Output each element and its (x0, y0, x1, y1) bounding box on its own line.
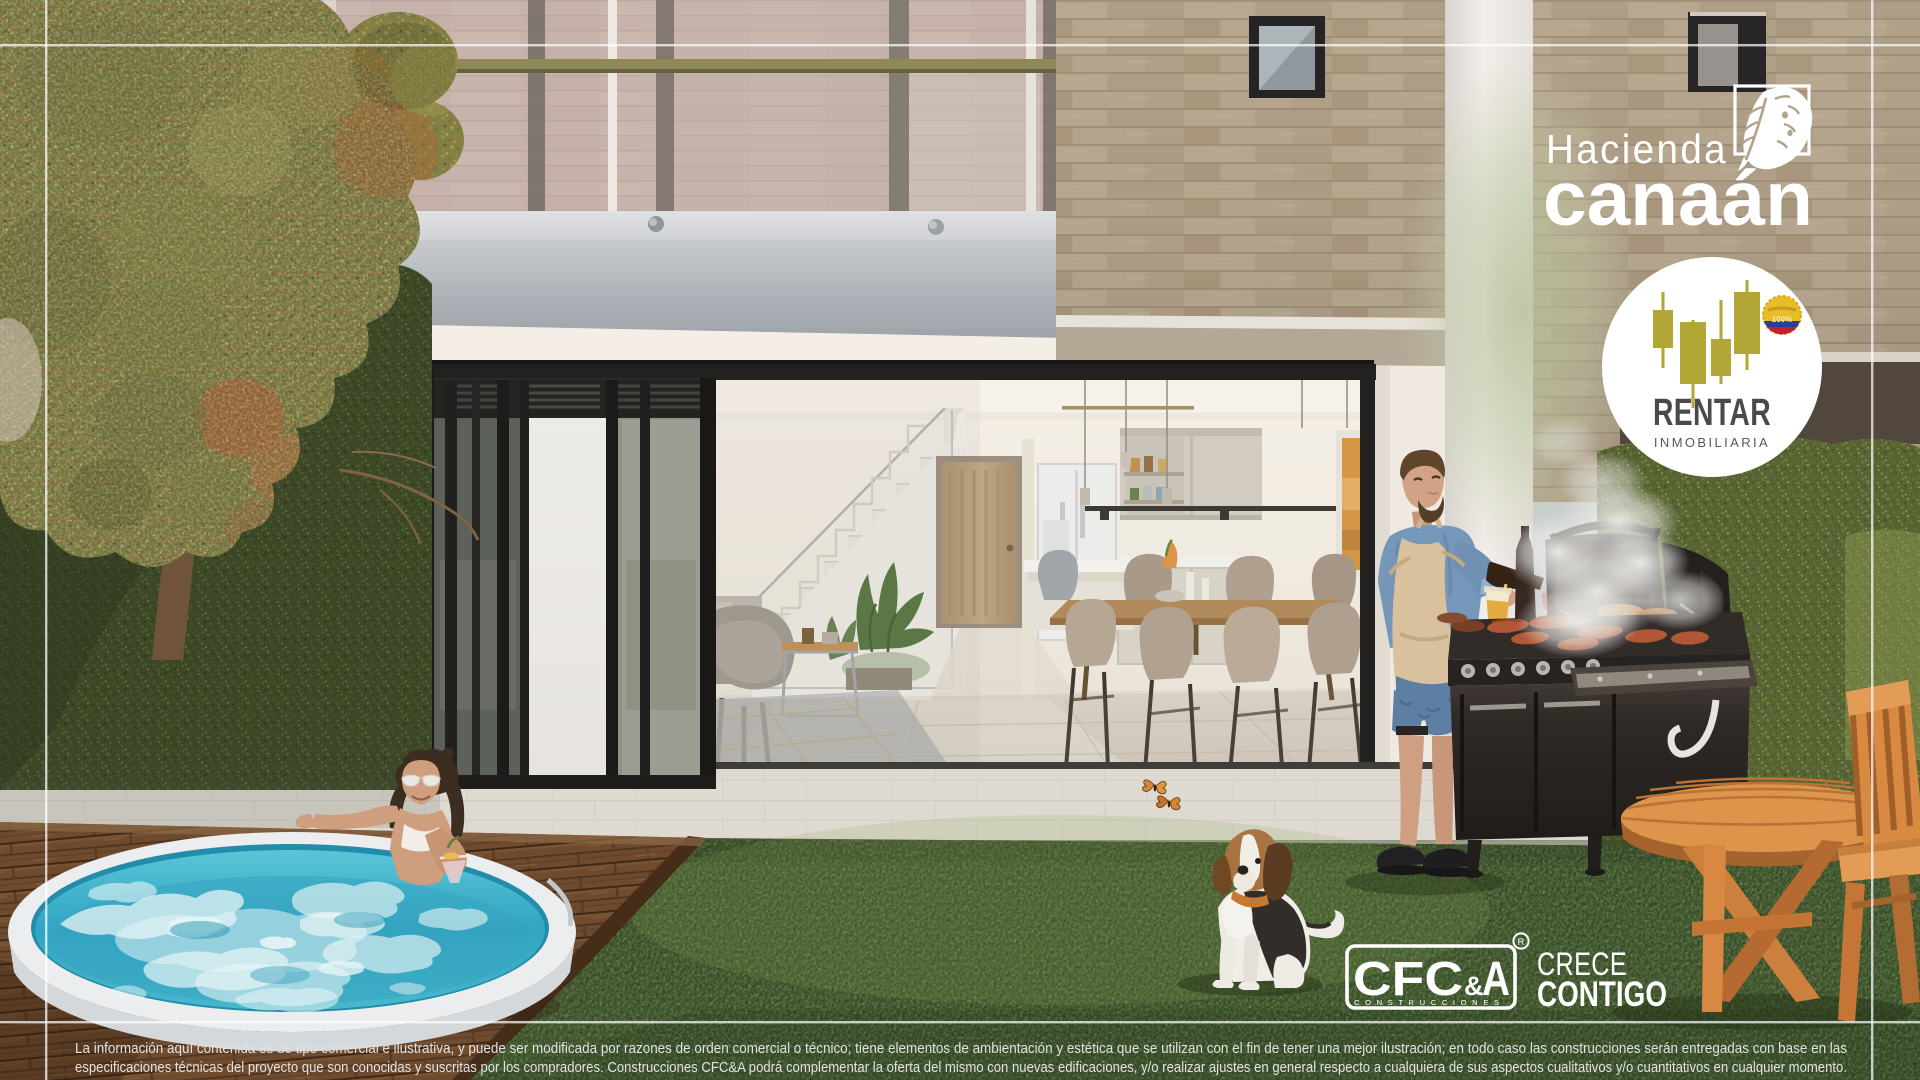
svg-text:CONTIGO: CONTIGO (1537, 975, 1667, 1014)
svg-text:especificaciones técnicas del: especificaciones técnicas del proyecto q… (75, 1060, 1847, 1076)
svg-text:RENTAR: RENTAR (1653, 392, 1771, 434)
svg-text:&: & (1464, 971, 1484, 1001)
svg-text:CONSTRUCCIONES: CONSTRUCCIONES (1354, 998, 1505, 1007)
svg-text:La información aquí contenida: La información aquí contenida es de tipo… (75, 1041, 1847, 1057)
svg-text:canaán: canaán (1543, 156, 1813, 242)
svg-text:INMOBILIARIA: INMOBILIARIA (1654, 435, 1770, 450)
svg-text:100%: 100% (1772, 315, 1792, 324)
svg-text:R: R (1518, 937, 1525, 948)
